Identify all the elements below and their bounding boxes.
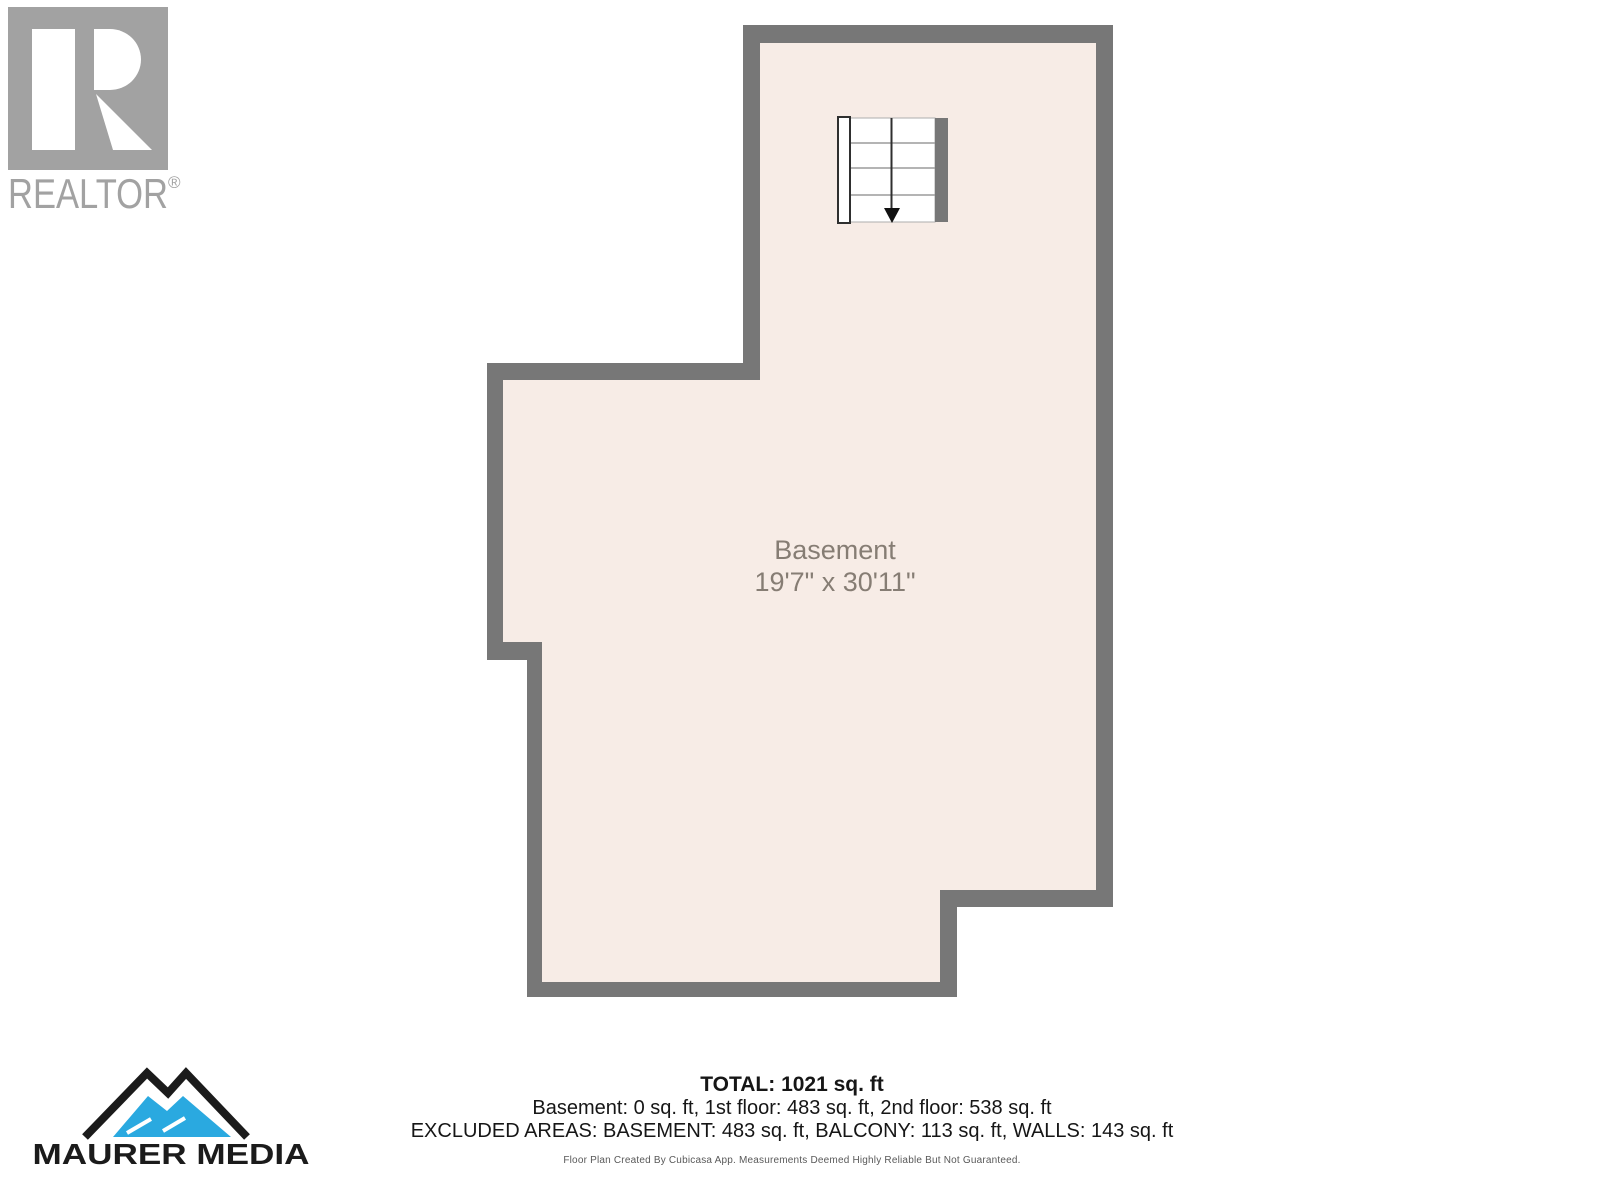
basement-floor: [503, 43, 1096, 982]
floor-plan-drawing: [0, 0, 1600, 1200]
room-dimensions: 19'7" x 30'11": [754, 566, 915, 598]
disclaimer: Floor Plan Created By Cubicasa App. Meas…: [0, 1155, 1584, 1166]
room-label: Basement 19'7" x 30'11": [754, 534, 915, 598]
realtor-wordmark: REALTOR: [8, 170, 168, 217]
stair-wall-strip: [935, 118, 948, 222]
excluded-areas: EXCLUDED AREAS: BASEMENT: 483 sq. ft, BA…: [0, 1120, 1584, 1143]
registered-trademark-icon: ®: [168, 173, 181, 192]
staircase: [838, 117, 948, 223]
stair-stringer: [838, 117, 850, 223]
room-name: Basement: [754, 534, 915, 566]
total-area: TOTAL: 1021 sq. ft: [0, 1073, 1584, 1097]
floor-plan-page: Basement 19'7" x 30'11" REALTOR ® MAURER…: [0, 0, 1600, 1200]
realtor-logo: REALTOR ®: [0, 0, 200, 225]
floor-breakdown: Basement: 0 sq. ft, 1st floor: 483 sq. f…: [0, 1097, 1584, 1120]
area-summary: TOTAL: 1021 sq. ft Basement: 0 sq. ft, 1…: [0, 1073, 1584, 1166]
